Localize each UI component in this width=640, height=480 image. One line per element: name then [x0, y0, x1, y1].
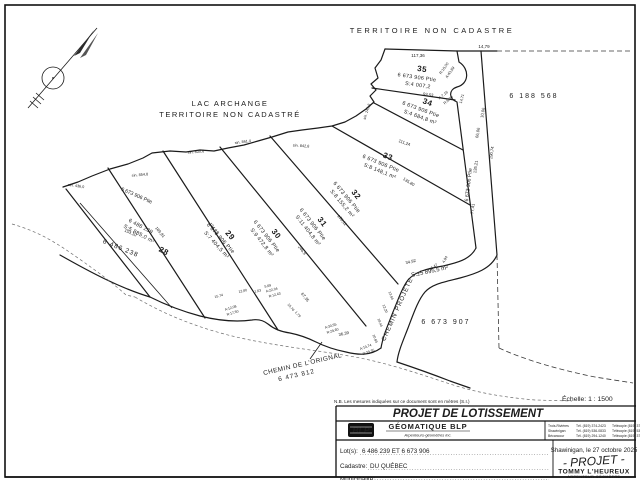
office-city: Shawinigan: [548, 429, 566, 433]
measure-label: 10,69: [371, 334, 378, 344]
place-date: Shawinigan, le 27 octobre 2025: [551, 447, 638, 454]
survey-plan-sheet: TERRITOIRE NON CADASTRE LAC ARCHANGE TER…: [0, 0, 640, 480]
lot-30: 306 673 906 PtieS:9 472,8 m²: [246, 213, 289, 259]
sinuosity-label: sin. 842,8: [293, 143, 310, 148]
measure-label: 66,06: [474, 126, 481, 138]
territory-label-top: TERRITOIRE NON CADASTRE: [350, 26, 514, 35]
lot-number: 35: [417, 64, 428, 74]
office-tel: Tél. (819) 294-1240: [576, 434, 606, 438]
non-cadastre-limit: [497, 255, 499, 348]
parcel-limit-dashed: [12, 224, 135, 297]
measure-label: 1,79: [294, 310, 301, 318]
measure-label: 10,06: [479, 106, 486, 118]
lake-label-line1: LAC ARCHANGE: [192, 99, 269, 108]
road-edge: [381, 248, 476, 348]
office-fax: Télécopie (819) 374-0753: [612, 434, 640, 438]
measure-label: 34,92: [405, 258, 417, 266]
projet-stamp: - PROJET -: [562, 452, 625, 470]
measure-label: 14,71: [459, 94, 465, 104]
plan-canvas: TERRITOIRE NON CADASTRE LAC ARCHANGE TER…: [0, 0, 640, 480]
measure-label: 4,94: [442, 255, 449, 263]
office-city: Bécancour: [548, 434, 565, 438]
lot-boundary: [385, 49, 497, 51]
measure-label: 1,63: [254, 288, 262, 293]
office-city: Trois-Rivières: [548, 424, 569, 428]
road-edge: [60, 255, 381, 354]
measure-label: 15,74: [214, 293, 224, 299]
office-fax: Télécopie (819) 374-0753: [612, 424, 640, 428]
firm-logo-text: BLP: [353, 425, 370, 435]
cadastre-label: Cadastre:: [340, 463, 368, 470]
lot-33: 336 673 906 PtieS:8 148,1 m²: [359, 144, 404, 181]
sinuosity-label: sin. 436,0: [68, 183, 85, 189]
parcel-number-label: 6 673 906 Ptie: [464, 168, 474, 202]
lot-boundary: [270, 136, 398, 284]
parcel-number-label: 6 673 907: [421, 319, 470, 326]
units-note: N.B. Les mesures indiquées sur ce docume…: [334, 399, 470, 404]
lots-label: Lot(s):: [340, 448, 358, 455]
measure-label: 14,79: [478, 44, 490, 49]
measure-label: 13,94: [387, 291, 394, 301]
measure-label: 117,36: [411, 53, 425, 58]
lot-29: 296 673 906 PtieS:7 404,5 m²: [199, 215, 243, 260]
sinuosity-label: sin. 830,6: [188, 149, 205, 154]
parcel-number-label: 6 673 906 Ptie: [120, 187, 153, 206]
measure-label: 111,24: [398, 138, 412, 147]
lot-number: 34: [421, 96, 433, 108]
office-tel: Tél. (819) 536-0833: [576, 429, 606, 433]
measure-label: 36,39: [338, 330, 350, 337]
firm-subtitle: Arpenteurs-géomètres inc.: [403, 433, 451, 438]
parcel-number-label: 6 486 238: [102, 238, 140, 259]
lot-32: 326 673 906 PtieS:8 155,2 m²: [326, 174, 370, 220]
curve-measure-label: R:12,43: [268, 292, 281, 299]
parcel-number-label: 6 188 568: [509, 93, 558, 100]
firm-offices: Trois-RivièresTél. (819) 374-2423Télécop…: [548, 424, 640, 438]
title-block: N.B. Les mesures indiquées sur ce docume…: [5, 394, 640, 480]
plan-title: PROJET DE LOTISSEMENT: [393, 408, 544, 420]
measure-label: 169,81: [154, 226, 166, 240]
office-tel: Tél. (819) 374-2423: [576, 424, 606, 428]
lot-boundary: [220, 147, 366, 326]
lot-boundary: [80, 203, 172, 308]
measure-label: 15,76: [286, 303, 295, 312]
scale-label: Échelle: 1 : 1500: [562, 394, 613, 403]
measure-label: 77,41: [469, 203, 476, 215]
office-fax: Télécopie (819) 536-0834: [612, 429, 640, 433]
lake-label-line2: TERRITOIRE NON CADASTRÉ: [159, 110, 300, 119]
cadastre-value: DU QUÉBEC: [370, 461, 408, 470]
lot-31: 316 673 906 PtieS:11 404,8 m²: [292, 201, 336, 248]
measure-label: 12,80: [238, 288, 247, 294]
road-lower-edge-dashed: [135, 297, 572, 401]
measure-label: 246,9: [297, 244, 308, 256]
measure-label: 67,35: [300, 291, 311, 303]
measure-label: 18,44: [376, 318, 383, 328]
measure-label: 135,80: [402, 176, 416, 187]
sinuosity-label: sin. 243,6: [363, 103, 372, 120]
measure-label: 12,20: [381, 304, 388, 314]
north-arrow-icon: [28, 28, 98, 108]
non-cadastre-limit: [499, 348, 633, 383]
sinuosity-label: sin. 854,8: [132, 172, 149, 177]
lot-35: 356 673 906 PtieS:4 007,2: [396, 61, 438, 91]
firm-name: GÉOMATIQUE BLP: [389, 422, 468, 431]
lots-value: 6 486 239 ET 6 673 906: [362, 448, 430, 455]
measure-label: 190,74: [488, 145, 495, 159]
road-edge: [397, 362, 470, 388]
